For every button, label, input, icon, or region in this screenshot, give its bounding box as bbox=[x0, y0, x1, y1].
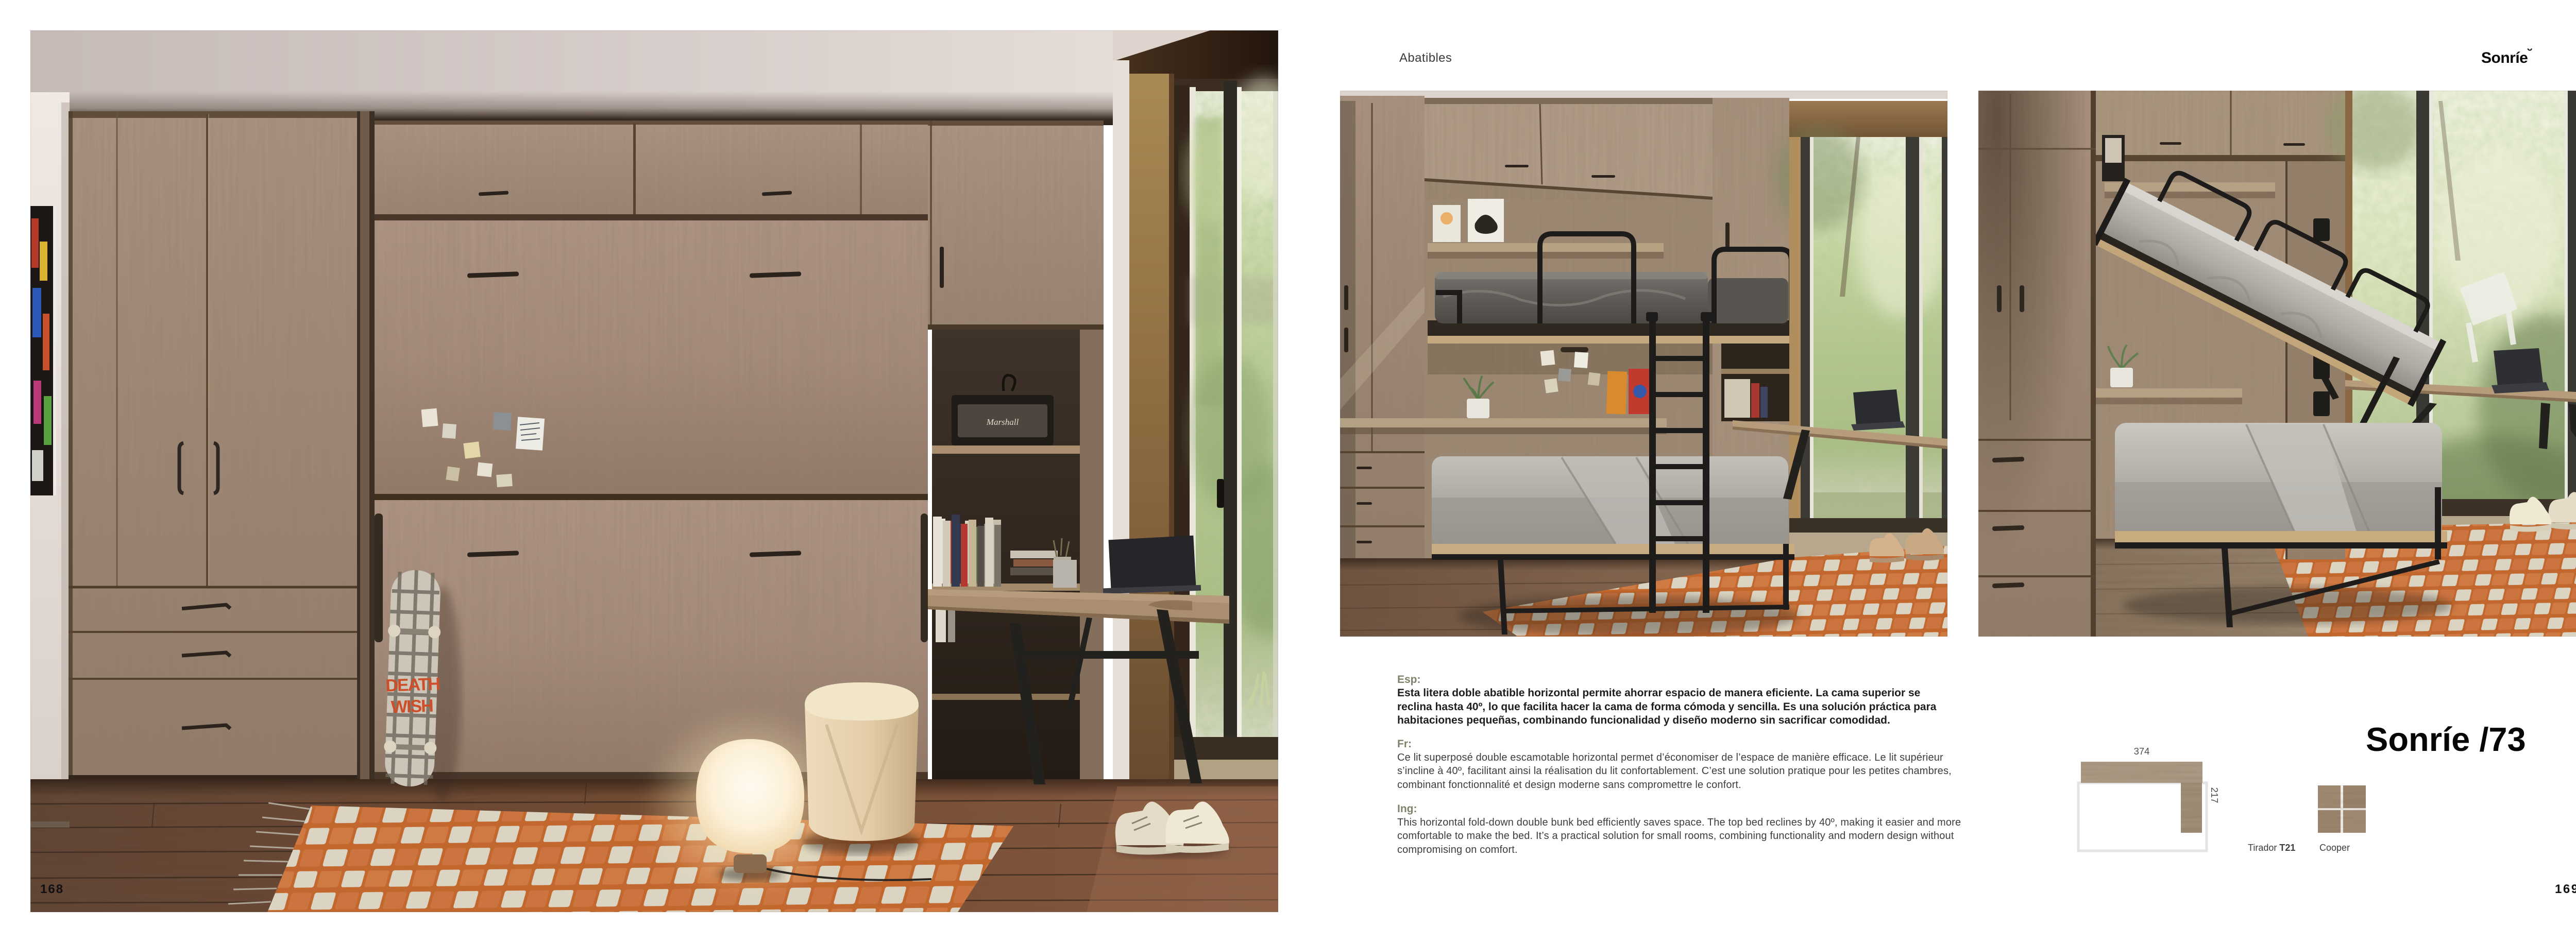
svg-text:WISH: WISH bbox=[391, 696, 433, 717]
svg-text:374: 374 bbox=[2134, 746, 2150, 757]
svg-text:DEATH: DEATH bbox=[385, 674, 440, 696]
svg-text:Marshall: Marshall bbox=[986, 417, 1019, 427]
svg-text:217: 217 bbox=[2209, 787, 2220, 803]
